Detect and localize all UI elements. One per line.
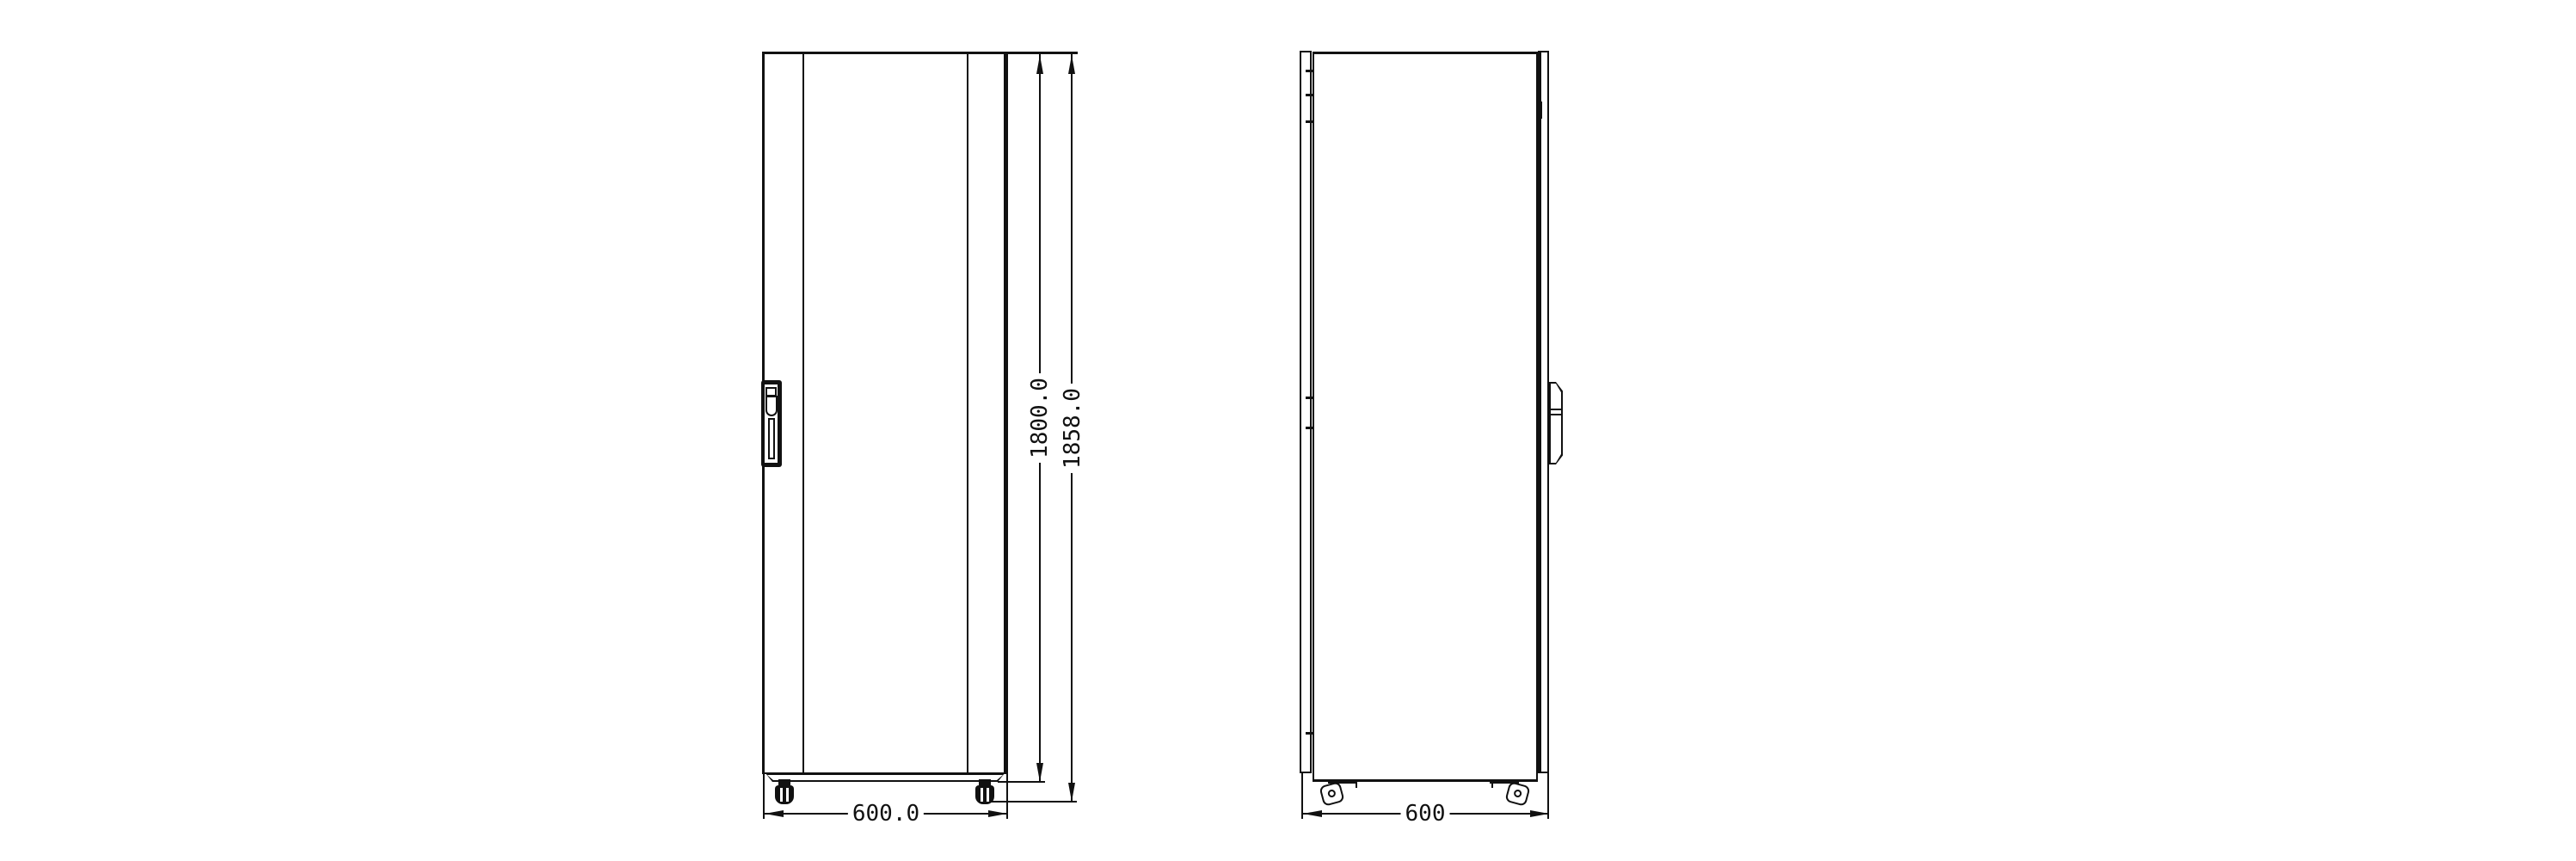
caster-side-left	[1319, 781, 1344, 807]
door-hinge-mark	[1539, 101, 1542, 119]
base-bracket-right-lip	[1491, 782, 1493, 788]
arrowhead	[1068, 783, 1075, 802]
door-latch-mark	[1536, 418, 1541, 435]
arrowhead	[1303, 810, 1322, 817]
arrowhead	[988, 810, 1007, 817]
front-door-edge-left	[802, 54, 804, 772]
arrowhead	[1068, 55, 1075, 74]
hinge-mark	[1306, 70, 1313, 72]
front-plinth-face	[767, 775, 1003, 780]
caster-wheel	[975, 785, 994, 804]
hinge-mark	[1306, 94, 1313, 96]
arrowhead	[1036, 763, 1043, 782]
hinge-mark	[1306, 732, 1313, 735]
caster-side-right	[1504, 781, 1530, 807]
front-cabinet-outline	[762, 52, 1008, 774]
side-rear-panel-strip	[1300, 51, 1312, 773]
caster-front-left	[774, 779, 795, 804]
dim-label-depth: 600	[1401, 801, 1450, 827]
arrowhead	[1036, 55, 1043, 74]
drawing-canvas: 1800.0 1858.0 600.0	[0, 0, 2576, 861]
hinge-mark	[1306, 427, 1313, 429]
front-door-handle	[761, 380, 782, 467]
side-cabinet-outline	[1313, 52, 1538, 782]
caster-wheel	[775, 785, 794, 804]
dim-label-height: 1800.0	[1027, 373, 1053, 463]
front-door-edge-right	[967, 54, 968, 772]
side-front-door-strip	[1538, 51, 1549, 773]
side-door-handle	[1549, 382, 1563, 464]
dim-label-overall-height: 1858.0	[1060, 384, 1085, 473]
handle-lock-knob	[765, 396, 778, 416]
connector-1858-bottom	[991, 801, 1077, 803]
top-extension-line	[1008, 52, 1078, 54]
base-bracket-left-lip	[1356, 782, 1357, 788]
arrowhead	[765, 810, 784, 817]
caster-front-right	[974, 779, 995, 804]
handle-grip-slot	[768, 418, 775, 459]
hinge-mark	[1306, 120, 1313, 123]
hinge-mark	[1306, 397, 1313, 399]
arrowhead	[1530, 810, 1549, 817]
dim-label-width: 600.0	[848, 801, 924, 827]
